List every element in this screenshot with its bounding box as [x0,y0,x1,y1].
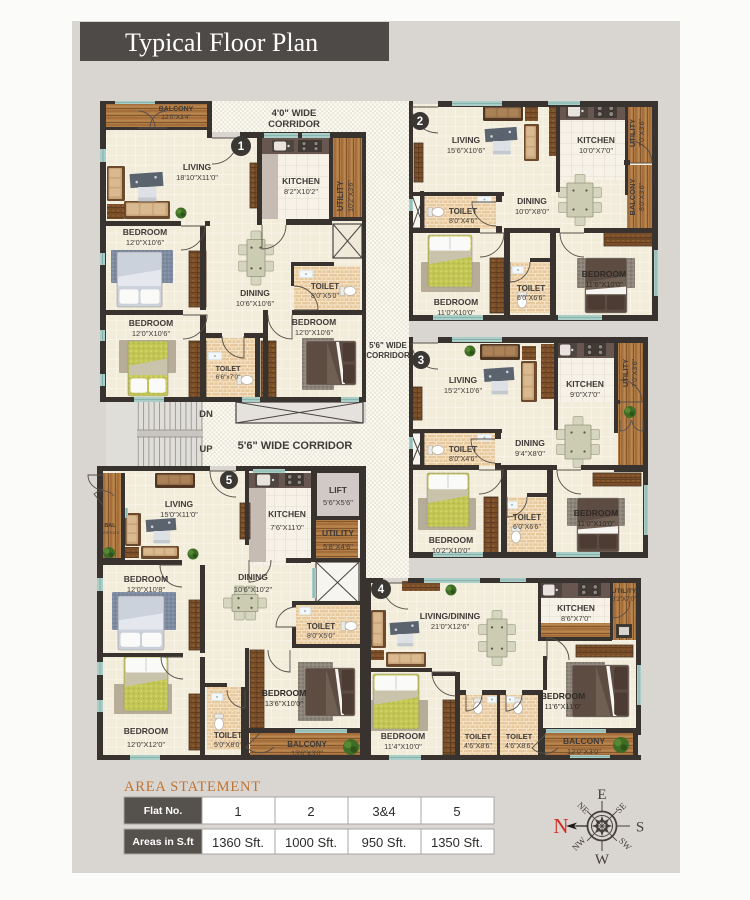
svg-text:7'0"X3'6": 7'0"X3'6" [639,119,646,147]
svg-text:10'2"X10'0": 10'2"X10'0" [432,546,471,555]
svg-text:1: 1 [238,141,245,153]
svg-text:1: 1 [234,804,241,819]
svg-text:6'0"X6'6": 6'0"X6'6" [517,295,545,302]
svg-text:DN: DN [199,409,213,420]
svg-text:9'0"X7'0": 9'0"X7'0" [570,390,600,399]
svg-text:10'6"X10'6": 10'6"X10'6" [236,299,275,308]
svg-text:N: N [553,814,568,838]
svg-text:11'6"X10'0": 11'6"X10'0" [585,280,623,289]
svg-text:2: 2 [307,804,314,819]
svg-text:5'8"X4'6": 5'8"X4'6" [323,542,353,551]
svg-text:BEDROOM: BEDROOM [262,688,306,698]
svg-text:12'0"X3'0": 12'0"X3'0" [567,747,601,756]
svg-text:8'2"X10'2": 8'2"X10'2" [284,187,318,196]
svg-text:5'6" WIDE: 5'6" WIDE [369,341,407,350]
svg-text:15'2"X10'6": 15'2"X10'6" [444,386,483,395]
svg-text:BALCONY: BALCONY [628,178,637,215]
svg-text:5'0"X8'0": 5'0"X8'0" [214,742,242,749]
svg-text:TOILET: TOILET [449,207,477,216]
svg-text:950 Sft.: 950 Sft. [362,835,407,850]
svg-text:DINING: DINING [238,572,268,582]
svg-text:BEDROOM: BEDROOM [292,317,336,327]
svg-text:LIVING: LIVING [452,135,481,145]
svg-text:12'0"X10'6": 12'0"X10'6" [132,329,171,338]
svg-text:BEDROOM: BEDROOM [123,227,167,237]
svg-text:LIVING/DINING: LIVING/DINING [420,611,481,621]
svg-text:3'2"X7'0": 3'2"X7'0" [612,597,636,603]
svg-text:10'0"X7'0": 10'0"X7'0" [579,146,613,155]
svg-text:6'6"x7'0": 6'6"x7'0" [216,374,241,381]
svg-text:LIVING: LIVING [449,375,478,385]
svg-text:15'0"X11'0": 15'0"X11'0" [160,510,198,519]
svg-text:8'0"X4'6": 8'0"X4'6" [449,456,477,463]
svg-text:BEDROOM: BEDROOM [429,535,473,545]
svg-text:13'6"X10'0": 13'6"X10'0" [265,699,304,708]
svg-text:BAL: BAL [104,523,116,529]
svg-text:TOILET: TOILET [214,731,242,740]
svg-text:BEDROOM: BEDROOM [129,318,173,328]
svg-text:9'4"X8'0": 9'4"X8'0" [515,449,545,458]
svg-text:10'6"X10'2": 10'6"X10'2" [234,585,273,594]
svg-text:10'2"X3'6": 10'2"X3'6" [348,180,355,212]
svg-text:CORRIDOR: CORRIDOR [366,351,410,360]
svg-text:Typical Floor Plan: Typical Floor Plan [125,28,318,57]
svg-text:UTILITY: UTILITY [322,528,354,538]
svg-text:BALCONY: BALCONY [287,740,327,749]
svg-text:DINING: DINING [240,288,270,298]
svg-text:LIVING: LIVING [183,162,212,172]
svg-text:BEDROOM: BEDROOM [434,297,478,307]
svg-text:2: 2 [417,116,423,128]
svg-text:3: 3 [418,355,424,367]
svg-text:UTILITY: UTILITY [336,180,345,211]
svg-text:KITCHEN: KITCHEN [577,135,615,145]
svg-text:12'0"X10'6": 12'0"X10'6" [126,238,165,247]
svg-text:8'6"X7'0": 8'6"X7'0" [561,614,591,623]
svg-text:1350 Sft.: 1350 Sft. [431,835,483,850]
svg-text:8'0"X4'6": 8'0"X4'6" [449,218,477,225]
svg-text:UTILITY: UTILITY [628,119,637,147]
svg-text:8'0"X5'0": 8'0"X5'0" [307,633,335,640]
svg-text:8'0"X5'0": 8'0"X5'0" [311,293,339,300]
svg-text:BALCONY: BALCONY [159,106,194,113]
svg-text:5: 5 [453,804,460,819]
svg-text:4'0" WIDE: 4'0" WIDE [272,108,317,119]
svg-text:TOILET: TOILET [465,732,492,741]
svg-text:12'0"X11'0: 12'0"X11'0 [101,530,120,535]
svg-text:11'0"X10'0": 11'0"X10'0" [437,308,475,317]
svg-text:BEDROOM: BEDROOM [582,269,626,279]
svg-text:5'6" WIDE CORRIDOR: 5'6" WIDE CORRIDOR [238,440,353,452]
svg-text:5: 5 [226,475,233,487]
svg-text:UTILITY: UTILITY [612,588,637,595]
svg-text:CORRIDOR: CORRIDOR [268,119,320,130]
svg-text:KITCHEN: KITCHEN [268,509,306,519]
svg-text:12'0"X10'6": 12'0"X10'6" [295,328,334,337]
svg-text:BALCONY: BALCONY [563,736,605,746]
svg-text:BEDROOM: BEDROOM [574,508,618,518]
svg-text:Areas in S.ft: Areas in S.ft [132,836,194,848]
svg-text:Flat No.: Flat No. [144,805,183,817]
svg-text:KITCHEN: KITCHEN [557,603,595,613]
svg-text:AREA STATEMENT: AREA STATEMENT [124,779,261,795]
svg-text:18'10"X11'0": 18'10"X11'0" [176,173,218,182]
svg-text:DINING: DINING [517,196,547,206]
svg-text:11'4"X10'0": 11'4"X10'0" [384,742,422,751]
svg-text:BEDROOM: BEDROOM [541,691,585,701]
svg-text:TOILET: TOILET [311,282,339,291]
svg-text:4'6"X8'6": 4'6"X8'6" [464,743,492,750]
svg-text:1000 Sft.: 1000 Sft. [285,835,337,850]
svg-text:KITCHEN: KITCHEN [566,379,604,389]
svg-text:13'6"X3'0": 13'6"X3'0" [291,751,323,758]
svg-text:3&4: 3&4 [372,804,395,819]
svg-text:12'0"X10'8": 12'0"X10'8" [127,585,166,594]
svg-text:E: E [597,787,606,803]
svg-text:4: 4 [378,584,385,596]
svg-text:7'0"X3'6": 7'0"X3'6" [632,359,639,387]
svg-text:TOILET: TOILET [513,513,541,522]
svg-text:6'0"X6'6": 6'0"X6'6" [513,524,541,531]
svg-text:TOILET: TOILET [216,366,241,373]
svg-text:TOILET: TOILET [517,284,545,293]
svg-text:LIVING: LIVING [165,499,194,509]
svg-text:21'0"X12'6": 21'0"X12'6" [431,622,470,631]
svg-text:15'6"X10'6": 15'6"X10'6" [447,146,486,155]
svg-text:W: W [595,852,610,868]
svg-text:BEDROOM: BEDROOM [381,731,425,741]
svg-text:BEDROOM: BEDROOM [124,574,168,584]
svg-text:DINING: DINING [515,438,545,448]
svg-text:4'6"X8'6": 4'6"X8'6" [505,743,533,750]
svg-text:TOILET: TOILET [307,622,335,631]
svg-text:TOILET: TOILET [506,732,533,741]
svg-text:12'0"X3'4": 12'0"X3'4" [161,114,191,121]
svg-text:12'0"X12'0": 12'0"X12'0" [127,740,166,749]
svg-text:S: S [636,820,644,836]
svg-text:BEDROOM: BEDROOM [124,726,168,736]
svg-text:11'0"X10'0": 11'0"X10'0" [577,519,615,528]
svg-text:10'0"X8'0": 10'0"X8'0" [515,207,549,216]
svg-text:TOILET: TOILET [449,445,477,454]
svg-text:LIFT: LIFT [329,485,348,495]
svg-text:UTILITY: UTILITY [621,359,630,387]
svg-text:5'6"X5'6": 5'6"X5'6" [323,498,353,507]
svg-text:KITCHEN: KITCHEN [282,176,320,186]
svg-text:UP: UP [199,444,213,455]
svg-text:1360 Sft.: 1360 Sft. [212,835,264,850]
svg-text:8'0"X3'6": 8'0"X3'6" [639,183,646,211]
svg-text:7'6"X11'0": 7'6"X11'0" [270,523,304,532]
svg-text:11'6"X11'0": 11'6"X11'0" [544,702,581,711]
